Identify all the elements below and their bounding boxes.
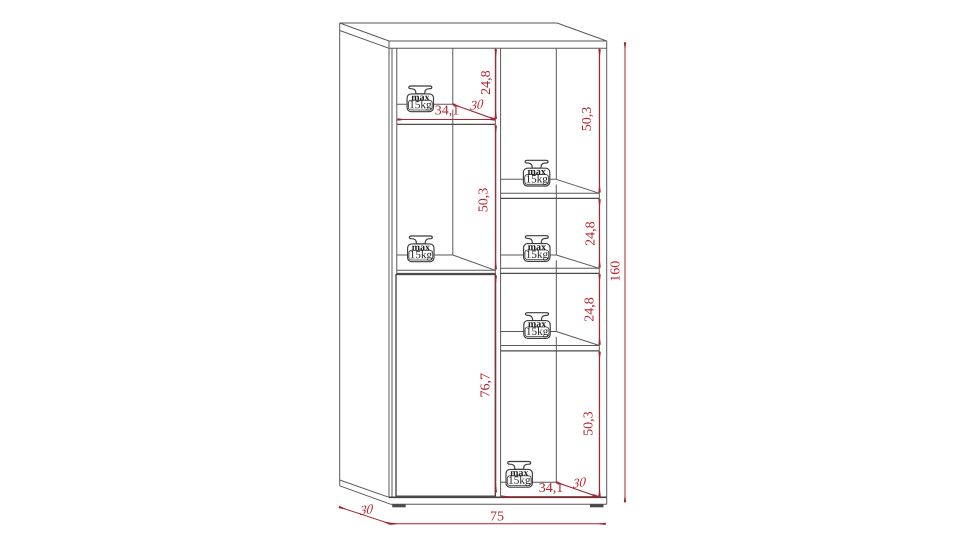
svg-text:30: 30 <box>359 501 374 519</box>
svg-text:50,3: 50,3 <box>582 411 597 436</box>
svg-text:75: 75 <box>490 510 504 525</box>
svg-text:30: 30 <box>572 474 587 492</box>
svg-text:50,3: 50,3 <box>580 107 595 132</box>
svg-text:30: 30 <box>469 96 484 114</box>
svg-text:24,8: 24,8 <box>583 297 598 322</box>
svg-text:76,7: 76,7 <box>479 373 494 398</box>
svg-text:50,3: 50,3 <box>477 188 492 213</box>
svg-text:160: 160 <box>609 261 624 282</box>
svg-text:24,8: 24,8 <box>583 221 598 246</box>
svg-text:24,8: 24,8 <box>479 70 494 95</box>
